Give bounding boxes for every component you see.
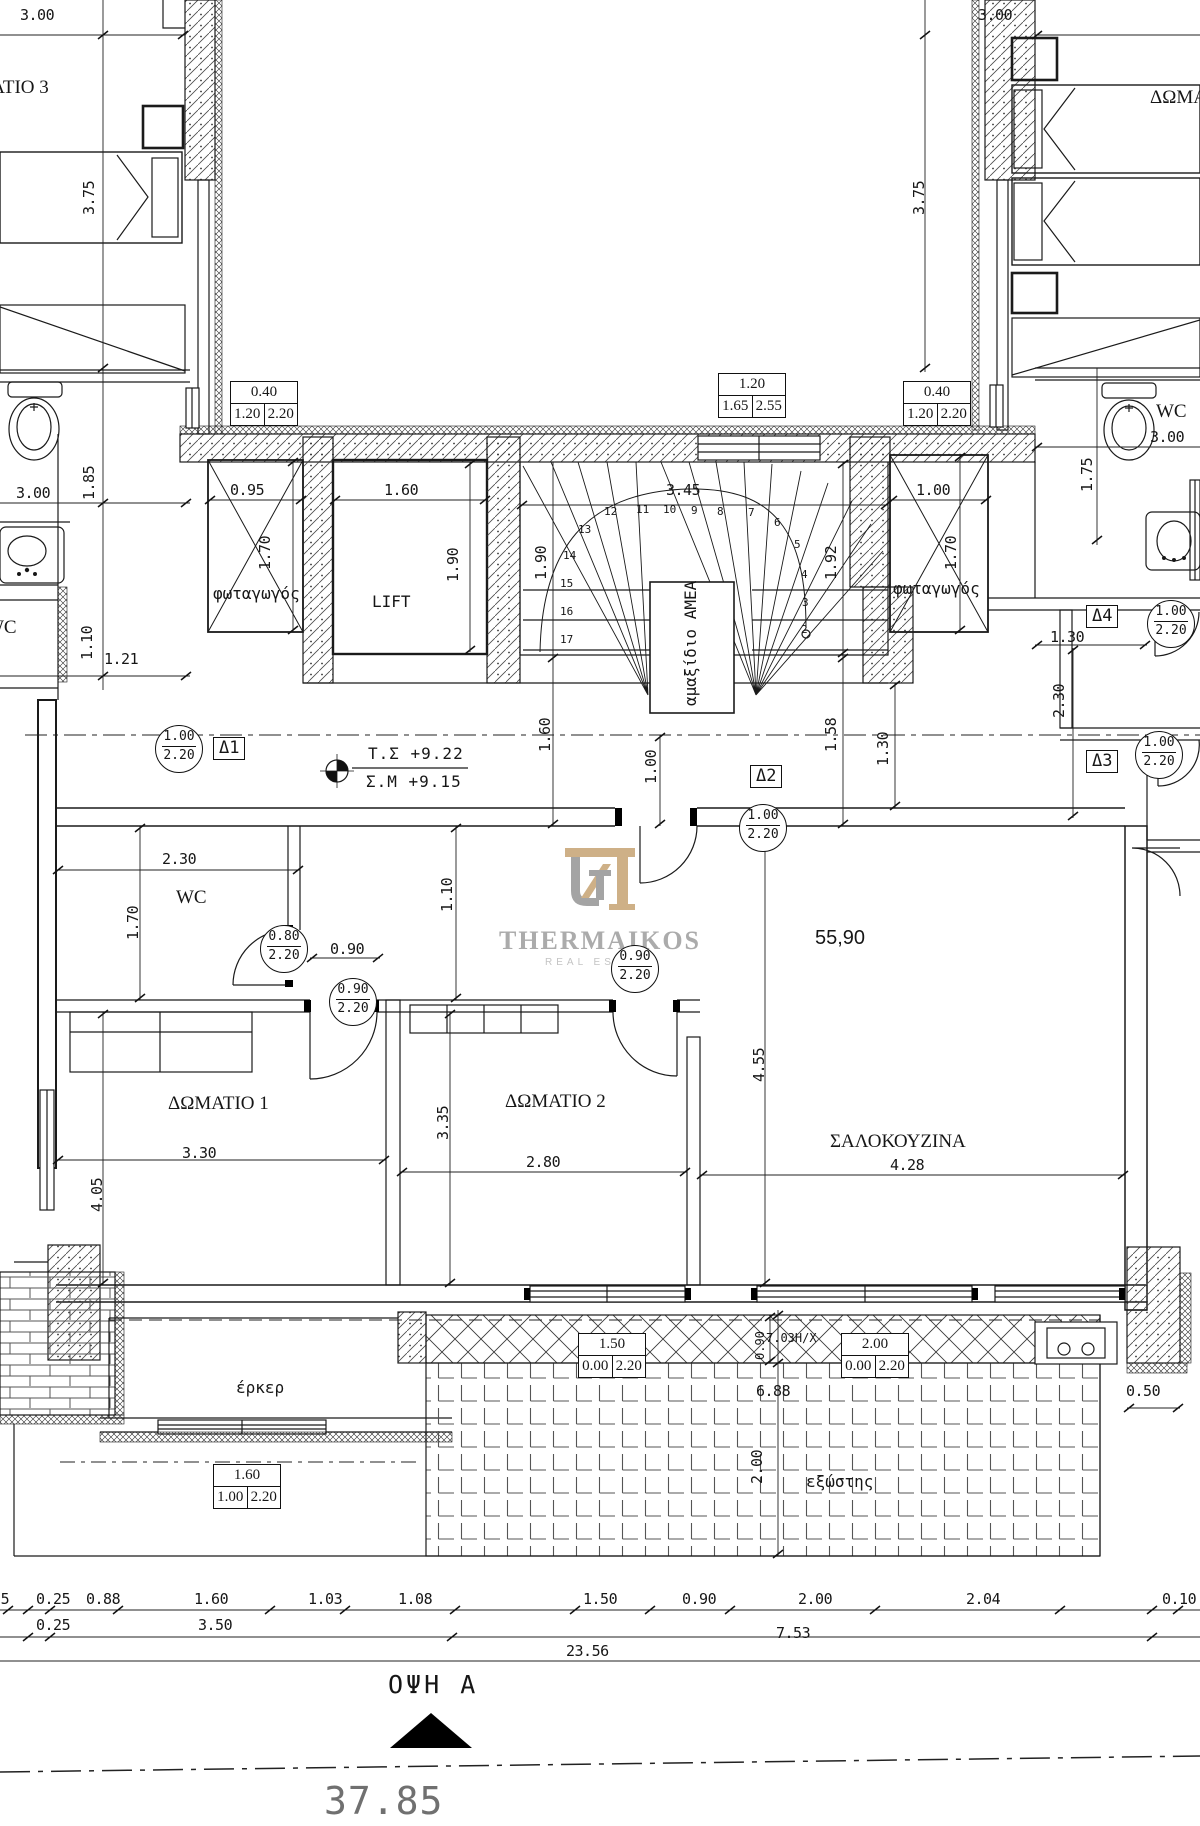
dim-3.00-leftwc: 3.00 [16, 486, 50, 501]
door-tag-bedroom2: 0.902.20 [611, 945, 659, 993]
dim-1.92: 1.92 [824, 546, 839, 580]
marker-d2: Δ2 [750, 765, 782, 788]
room-bedroom3-right: ΔΩΜΑΤΙΟ 3 [1150, 88, 1200, 107]
dim-2.00-terrace: 2.00 [750, 1450, 765, 1484]
dim-1.21: 1.21 [104, 652, 138, 667]
chain-0.25a: 0.25 [0, 1592, 9, 1607]
dim-1.70-wc: 1.70 [126, 906, 141, 940]
label-exostis: εξώστης [806, 1474, 873, 1490]
label-lightwell-right: φωταγωγός [893, 581, 980, 597]
dim-6.88: 6.88 [756, 1384, 790, 1399]
total-width: 37.85 [324, 1782, 443, 1820]
stair-step-5: 5 [794, 539, 801, 550]
dim-1.90-lift: 1.90 [446, 548, 461, 582]
chain-1.50: 1.50 [583, 1592, 617, 1607]
stair-step-6: 6 [774, 517, 781, 528]
stair-step-15: 15 [560, 578, 573, 589]
dim-1.60-mid: 1.60 [538, 718, 553, 752]
dim-3.45: 3.45 [666, 483, 700, 498]
chain-0.25b: 0.25 [36, 1592, 70, 1607]
marker-d3: Δ3 [1086, 750, 1118, 773]
annotation-layer: 3.00ΔΩΜΑΤΙΟ 33.753.00ΔΩΜΑΤΙΟ 33.753.001.… [0, 0, 1200, 1826]
stair-step-9: 9 [691, 505, 698, 516]
dim-3.35: 3.35 [436, 1106, 451, 1140]
label-erker: έρκερ [236, 1380, 284, 1396]
chain-0.90: 0.90 [682, 1592, 716, 1607]
label-lift: LIFT [372, 594, 411, 610]
stair-step-17: 17 [560, 634, 573, 645]
label-amea: αμαξίδιο ΑΜΕΑ [683, 581, 699, 706]
dim-2.30-wc: 2.30 [162, 852, 196, 867]
stair-step-8: 8 [717, 506, 724, 517]
door-tag-d1: 1.002.20 [155, 725, 203, 773]
dim-0.95: 0.95 [230, 483, 264, 498]
chain-0.10: 0.10 [1162, 1592, 1196, 1607]
dim-4.05: 4.05 [90, 1178, 105, 1212]
door-tag-d3: 1.002.20 [1135, 731, 1183, 779]
dim-1.10-hall: 1.10 [440, 878, 455, 912]
stair-step-11: 11 [636, 504, 649, 515]
chain-2.04: 2.04 [966, 1592, 1000, 1607]
stair-step-12: 12 [604, 506, 617, 517]
dim-1.75: 1.75 [1080, 458, 1095, 492]
stair-step-3: 3 [802, 597, 809, 608]
room-bedroom3-left: ΔΩΜΑΤΙΟ 3 [0, 78, 49, 97]
dim-4.28: 4.28 [890, 1158, 924, 1173]
chain-0.25c: 0.25 [36, 1618, 70, 1633]
stair-step-4: 4 [801, 569, 808, 580]
door-tag-wc: 0.802.20 [260, 925, 308, 973]
dim-1.00-mid: 1.00 [644, 750, 659, 784]
dim-3.00-topleft: 3.00 [20, 8, 54, 23]
chain-1.03: 1.03 [308, 1592, 342, 1607]
dim-2.30-right: 2.30 [1052, 684, 1067, 718]
door-tag-d4: 1.002.20 [1147, 600, 1195, 648]
level-sm: Σ.Μ +9.15 [366, 774, 462, 790]
dim-1.70-lwl: 1.70 [258, 536, 273, 570]
room-wc-apartment: WC [176, 888, 207, 907]
dim-2.80: 2.80 [526, 1155, 560, 1170]
chain-23.56: 23.56 [566, 1644, 609, 1659]
dim-1.60-lift: 1.60 [384, 483, 418, 498]
room-bedroom2: ΔΩΜΑΤΙΟ 2 [505, 1092, 606, 1111]
dim-1.10-left: 1.10 [80, 626, 95, 660]
floor-plan: THERMAIKOS REAL ESTATE 3.00ΔΩΜΑΤΙΟ 33.75… [0, 0, 1200, 1826]
dim-1.30-mid: 1.30 [876, 732, 891, 766]
dim-1.00-lwr: 1.00 [916, 483, 950, 498]
chain-7.53: 7.53 [776, 1626, 810, 1641]
area-55.90: 55,90 [815, 928, 865, 948]
window-tag-balcony-2: 2.000.002.20 [841, 1333, 909, 1378]
chain-1.60: 1.60 [194, 1592, 228, 1607]
door-tag-bedroom1: 0.902.20 [329, 978, 377, 1026]
stair-step-13: 13 [578, 524, 591, 535]
stair-step-7: 7 [748, 507, 755, 518]
dim-1.30-right: 1.30 [1050, 630, 1084, 645]
dim-0.50: 0.50 [1126, 1384, 1160, 1399]
level-ts: Τ.Σ +9.22 [368, 746, 464, 762]
balcony-note: 7.03H/X [766, 1332, 817, 1344]
window-tag-center: 1.201.652.55 [718, 373, 786, 418]
marker-d4: Δ4 [1086, 605, 1118, 628]
dim-3.75-left: 3.75 [82, 181, 97, 215]
room-bedroom1: ΔΩΜΑΤΙΟ 1 [168, 1094, 269, 1113]
stair-step-10: 10 [663, 504, 676, 515]
view-label: ΟΨΗ Α [388, 1672, 478, 1697]
chain-1.08: 1.08 [398, 1592, 432, 1607]
dim-3.00-rightwc: 3.00 [1150, 430, 1184, 445]
room-livingkitchen: ΣΑΛΟΚΟΥΖΙΝΑ [830, 1132, 966, 1151]
stair-step-16: 16 [560, 606, 573, 617]
window-tag-left: 0.401.202.20 [230, 381, 298, 426]
chain-2.00: 2.00 [798, 1592, 832, 1607]
dim-0.90-door: 0.90 [330, 942, 364, 957]
window-tag-right: 0.401.202.20 [903, 381, 971, 426]
dim-1.70-lwr: 1.70 [944, 536, 959, 570]
stair-step-2: 2 [801, 624, 808, 635]
marker-d1: Δ1 [213, 737, 245, 760]
dim-3.75-right: 3.75 [912, 181, 927, 215]
door-tag-d2: 1.002.20 [739, 804, 787, 852]
stair-step-14: 14 [563, 550, 576, 561]
window-tag-balcony-1: 1.500.002.20 [578, 1333, 646, 1378]
label-lightwell-left: φωταγωγός [213, 586, 300, 602]
dim-1.90-stair: 1.90 [534, 546, 549, 580]
room-wc-right: WC [1156, 402, 1187, 421]
chain-0.88: 0.88 [86, 1592, 120, 1607]
chain-3.50: 3.50 [198, 1618, 232, 1633]
dim-1.58: 1.58 [824, 718, 839, 752]
dim-4.55: 4.55 [752, 1048, 767, 1082]
dim-3.00-topright: 3.00 [978, 8, 1012, 23]
dim-1.85: 1.85 [82, 466, 97, 500]
room-wc-leftapt: WC [0, 618, 17, 637]
dim-3.30: 3.30 [182, 1146, 216, 1161]
dim-0.90-balcony: 0.90 [754, 1331, 766, 1360]
window-tag-erker: 1.601.002.20 [213, 1464, 281, 1509]
